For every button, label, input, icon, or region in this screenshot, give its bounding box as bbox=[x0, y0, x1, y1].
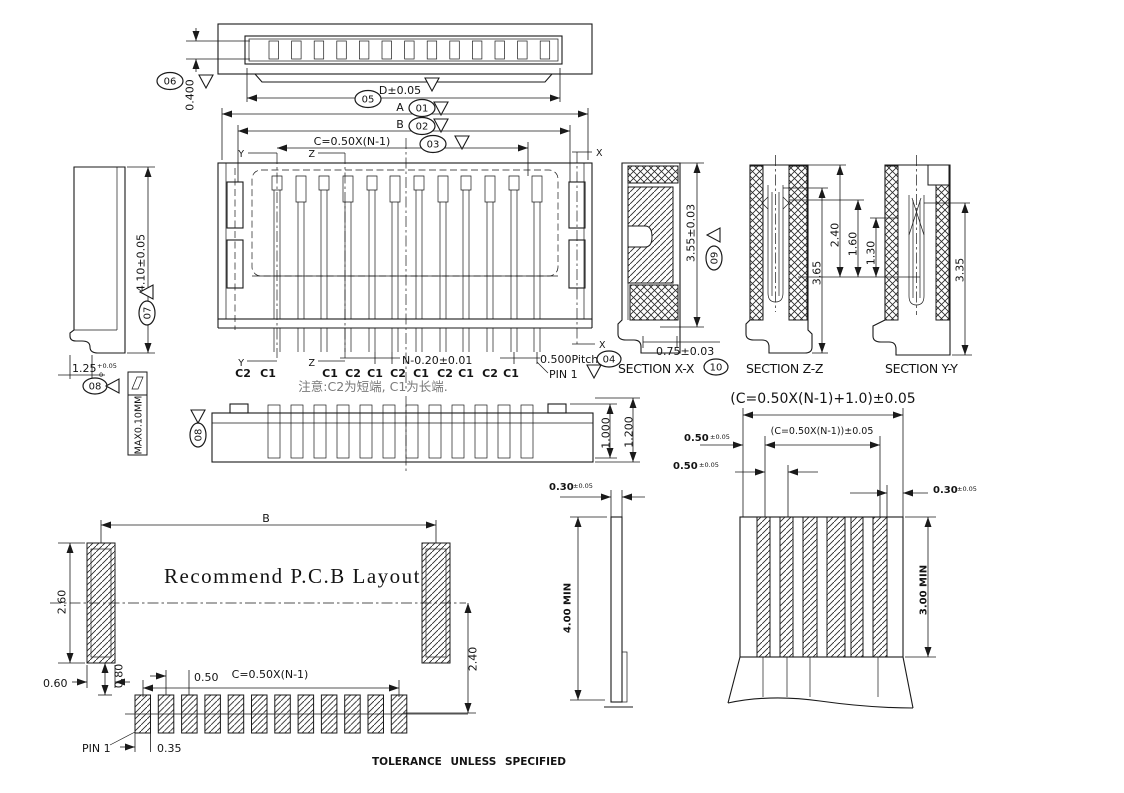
dim-075: 0.75±0.03 bbox=[656, 345, 714, 358]
section-xx: 3.55±0.03 09 0.75±0.03 SECTION X-X 10 bbox=[618, 163, 728, 376]
svg-text:01: 01 bbox=[416, 104, 429, 115]
finish-mark-icon bbox=[199, 75, 213, 88]
svg-text:03: 03 bbox=[427, 140, 440, 151]
pcb-dim-060: 0.60 bbox=[43, 677, 68, 690]
svg-text:02: 02 bbox=[416, 122, 429, 133]
dim-1200: 1.200 bbox=[623, 416, 636, 448]
svg-text:±0.05: ±0.05 bbox=[957, 485, 977, 493]
svg-text:04: 04 bbox=[603, 355, 616, 366]
dim-a: A bbox=[396, 101, 404, 114]
front-under-dims: N-0.20±0.01 0.500Pitch 04 PIN 1 C2 C1 C1… bbox=[235, 351, 621, 394]
pcb-title: Recommend P.C.B Layout bbox=[164, 564, 421, 588]
dim-410: 4.10±0.05 bbox=[135, 234, 148, 292]
balloon-03: 03 bbox=[420, 136, 446, 153]
fpc-dims: (C=0.50X(N-1)+1.0)±0.05 (C=0.50X(N-1))±0… bbox=[673, 391, 977, 517]
pcb-dim-050: 0.50 bbox=[194, 671, 219, 684]
pin1-label: PIN 1 bbox=[549, 368, 578, 381]
section-yy: 3.35 SECTION Y-Y bbox=[873, 155, 972, 376]
svg-text:C2: C2 bbox=[482, 367, 498, 380]
bottom-view: 08 1.000 1.200 bbox=[190, 396, 640, 472]
fpc-dim-050a: 0.50 bbox=[684, 433, 709, 444]
svg-text:±0.05: ±0.05 bbox=[710, 433, 730, 441]
top-view: 0.400 06 D±0.05 05 bbox=[157, 24, 592, 111]
dim-125-tol-minus: 0 bbox=[99, 371, 103, 379]
finish-mark-icon bbox=[434, 102, 448, 115]
overall-dims: A 01 B 02 C=0.50X(N-1) 03 bbox=[222, 100, 588, 183]
dim-pitch: 0.500Pitch bbox=[540, 353, 598, 366]
dim-130: 1.30 bbox=[865, 241, 878, 266]
balloon-01: 01 bbox=[409, 100, 435, 117]
dim-355: 3.55±0.03 bbox=[685, 204, 698, 262]
fpc-side-view: 0.30 ±0.05 4.00 MIN bbox=[549, 482, 645, 707]
pcb-dim-035: 0.35 bbox=[157, 742, 182, 755]
finish-mark-icon bbox=[707, 228, 720, 242]
pcb-dim-c: C=0.50X(N-1) bbox=[232, 668, 309, 681]
pcb-dim-240: 2.40 bbox=[467, 647, 480, 672]
cut-label-x-bottom: X bbox=[599, 340, 606, 351]
section-yy-title: SECTION Y-Y bbox=[885, 361, 958, 376]
svg-text:05: 05 bbox=[362, 95, 375, 106]
finish-mark-icon bbox=[106, 379, 119, 393]
front-view bbox=[218, 138, 592, 390]
drawing-art: 0.400 06 D±0.05 05 A 01 B bbox=[0, 0, 1124, 793]
svg-text:±0.05: ±0.05 bbox=[573, 482, 593, 490]
svg-text:08: 08 bbox=[89, 382, 102, 393]
fpc-dim-050b: 0.50 bbox=[673, 461, 698, 472]
fpc-dim-c: (C=0.50X(N-1))±0.05 bbox=[771, 426, 874, 437]
svg-text:C1: C1 bbox=[503, 367, 519, 380]
svg-text:C1: C1 bbox=[458, 367, 474, 380]
finish-mark-icon bbox=[455, 136, 469, 149]
dim-d: D±0.05 bbox=[379, 84, 421, 97]
balloon-06: 06 bbox=[157, 73, 183, 90]
section-xx-title: SECTION X-X bbox=[618, 361, 695, 376]
finish-mark-icon bbox=[587, 365, 601, 378]
connector-engineering-drawing: 0.400 06 D±0.05 05 A 01 B bbox=[0, 0, 1124, 793]
cut-label-x-top: X bbox=[596, 148, 603, 159]
cut-label-z-bottom: Z bbox=[308, 358, 315, 369]
dim-1000: 1.000 bbox=[600, 417, 613, 449]
side-view: 4.10±0.05 07 1.25 +0.05 0 08 MAX0.10MM bbox=[58, 167, 155, 455]
pcb-pin1-label: PIN 1 bbox=[82, 742, 111, 755]
svg-text:09: 09 bbox=[710, 252, 721, 265]
fpc-dim-300min: 3.00 MIN bbox=[919, 565, 930, 615]
svg-text:07: 07 bbox=[143, 307, 154, 320]
pcb-dim-260: 2.60 bbox=[56, 590, 69, 615]
balloon-02: 02 bbox=[409, 118, 435, 135]
svg-text:C1: C1 bbox=[260, 367, 276, 380]
dim-n: N-0.20±0.01 bbox=[402, 354, 472, 367]
dim-335: 3.35 bbox=[954, 258, 967, 283]
section-cut-lines: Y Y Z Z X X bbox=[237, 148, 606, 369]
svg-text:10: 10 bbox=[710, 363, 723, 374]
dim-c: C=0.50X(N-1) bbox=[314, 135, 391, 148]
section-zz-title: SECTION Z-Z bbox=[746, 361, 823, 376]
fpc-top-view: 3.00 MIN bbox=[728, 517, 936, 708]
balloon-09: 09 bbox=[706, 246, 722, 270]
pcb-dim-080: 0.80 bbox=[113, 664, 126, 689]
dim-365: 3.65 bbox=[811, 261, 824, 286]
finish-mark-icon bbox=[425, 78, 439, 91]
finish-mark-icon bbox=[191, 410, 205, 423]
cn-note: 注意:C2为短端, C1为长端. bbox=[298, 379, 448, 394]
flatness-max: MAX0.10MM bbox=[134, 396, 145, 455]
svg-text:06: 06 bbox=[164, 77, 177, 88]
fpc-dim-total: (C=0.50X(N-1)+1.0)±0.05 bbox=[730, 391, 915, 407]
svg-text:±0.05: ±0.05 bbox=[699, 461, 719, 469]
pcb-dim-b: B bbox=[262, 512, 270, 525]
tolerance-note: TOLERANCE UNLESS SPECIFIED bbox=[372, 756, 566, 768]
fpc-dim-030r: 0.30 bbox=[933, 485, 958, 496]
dim-125-tol-plus: +0.05 bbox=[97, 362, 117, 370]
cut-label-y-top: Y bbox=[237, 149, 244, 160]
balloon-07: 07 bbox=[139, 301, 155, 325]
svg-text:08: 08 bbox=[194, 429, 205, 442]
balloon-05: 05 bbox=[355, 91, 381, 108]
pcb-layout: Recommend P.C.B Layout B 2.60 2.40 0.60 … bbox=[43, 512, 480, 755]
cut-label-z-top: Z bbox=[308, 149, 315, 160]
dim-b: B bbox=[396, 118, 404, 131]
fpc-dim-030l: 0.30 bbox=[549, 482, 574, 493]
dim-125: 1.25 bbox=[72, 362, 97, 375]
balloon-08-side: 08 bbox=[83, 378, 107, 394]
dim-0400: 0.400 bbox=[184, 79, 197, 111]
balloon-10: 10 bbox=[704, 359, 728, 375]
dim-240: 2.40 bbox=[829, 223, 842, 248]
svg-text:C2: C2 bbox=[235, 367, 251, 380]
finish-mark-icon bbox=[434, 119, 448, 132]
dim-160: 1.60 bbox=[847, 232, 860, 257]
fpc-dim-400min: 4.00 MIN bbox=[563, 583, 574, 633]
balloon-08-bottom: 08 bbox=[190, 423, 206, 447]
